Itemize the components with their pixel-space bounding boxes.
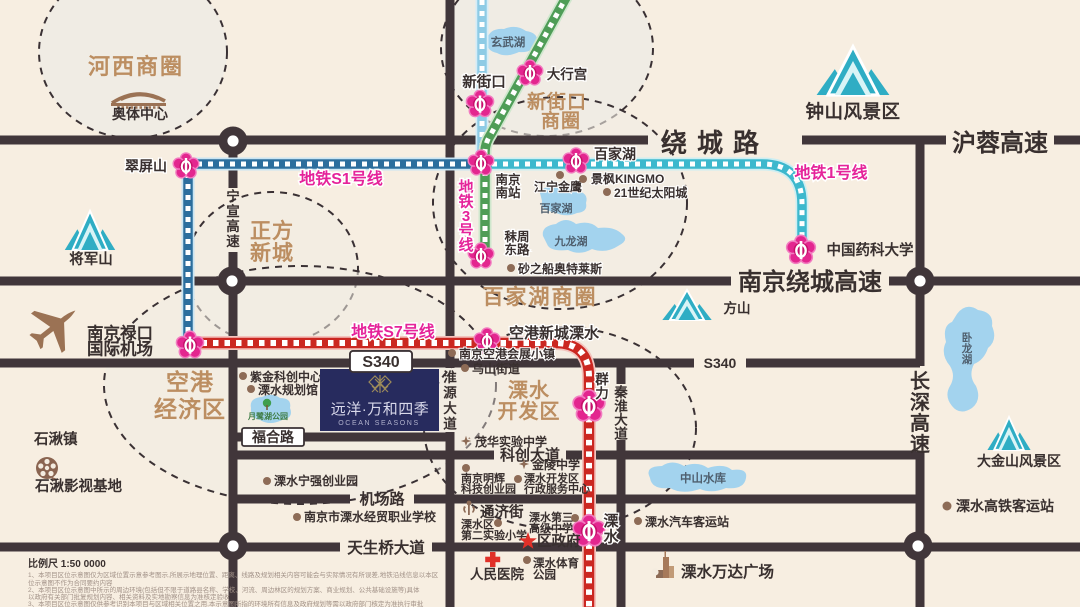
svg-text:福合路: 福合路 [251,429,295,445]
svg-text:宁宣高速: 宁宣高速 [226,188,240,249]
svg-text:砂之船奥特莱斯: 砂之船奥特莱斯 [517,261,602,276]
svg-text:钟山风景区: 钟山风景区 [805,101,900,122]
svg-text:河西商圈: 河西商圈 [88,54,184,79]
svg-text:绕城路: 绕城路 [661,128,769,158]
svg-text:南京禄口国际机场: 南京禄口国际机场 [87,323,153,359]
svg-text:玄武湖: 玄武湖 [491,35,526,49]
svg-text:新街口: 新街口 [462,73,506,91]
svg-text:月鹭湖公园: 月鹭湖公园 [247,411,288,421]
svg-text:溧水规划馆: 溧水规划馆 [258,382,318,397]
svg-text:溧水万达广场: 溧水万达广场 [681,562,774,581]
svg-text:大行宫: 大行宫 [547,66,588,82]
svg-text:奥体中心: 奥体中心 [112,106,168,122]
svg-text:地铁S1号线: 地铁S1号线 [299,169,383,188]
svg-text:中山水库: 中山水库 [680,471,726,485]
svg-text:百家湖: 百家湖 [540,201,573,215]
svg-text:景枫KINGMO: 景枫KINGMO [591,171,664,186]
svg-text:中国药科大学: 中国药科大学 [827,241,914,259]
svg-text:沪蓉高速: 沪蓉高速 [952,129,1048,157]
svg-text:S340: S340 [362,354,399,371]
svg-text:溧水汽车客运站: 溧水汽车客运站 [645,514,729,529]
svg-text:地铁1号线: 地铁1号线 [795,163,868,182]
svg-text:卧龙湖: 卧龙湖 [961,331,973,366]
svg-text:将军山: 将军山 [69,250,113,268]
svg-text:秦淮大道: 秦淮大道 [613,384,628,441]
svg-text:乌山街道: 乌山街道 [472,361,520,376]
svg-text:大金山风景区: 大金山风景区 [977,453,1061,469]
svg-text:远洋·万和四季: 远洋·万和四季 [331,401,430,418]
svg-text:地铁S7号线: 地铁S7号线 [351,322,435,341]
svg-text:秣周东路: 秣周东路 [504,229,530,257]
svg-text:人民医院: 人民医院 [470,566,524,582]
svg-text:比例尺 1:50 0000: 比例尺 1:50 0000 [28,557,106,570]
svg-text:位示意图不作为合同要约内容: 位示意图不作为合同要约内容 [28,578,113,587]
svg-text:南京空港会展小镇: 南京空港会展小镇 [459,346,555,361]
svg-text:溧水高铁客运站: 溧水高铁客运站 [956,498,1054,514]
svg-text:长深高速: 长深高速 [910,370,931,456]
svg-text:百家湖: 百家湖 [594,146,636,162]
svg-text:3、本项目区位示意图仅供参考识别本项目与区域相关位置之用,本: 3、本项目区位示意图仅供参考识别本项目与区域相关位置之用,本示意图所指的环境所有… [28,599,424,607]
svg-text:溧水: 溧水 [603,512,619,546]
svg-text:石湫影视基地: 石湫影视基地 [34,477,122,495]
svg-text:九龙湖: 九龙湖 [554,234,588,248]
svg-text:茂华实验中学: 茂华实验中学 [475,434,547,449]
svg-text:石湫镇: 石湫镇 [33,430,78,448]
svg-text:OCEAN SEASONS: OCEAN SEASONS [338,420,419,427]
svg-text:紫金科创中心: 紫金科创中心 [250,369,322,384]
svg-text:以政府有关部门批复规划内容、相关资料及实地勘察信息为准核定验: 以政府有关部门批复规划内容、相关资料及实地勘察信息为准核定验收 [28,592,230,601]
svg-text:金陵中学: 金陵中学 [531,457,580,472]
svg-text:1、本项目区位示意图仅为区域位置示意参考图示,所展示地理位置: 1、本项目区位示意图仅为区域位置示意参考图示,所展示地理位置、距离、线路及规划相… [28,570,439,579]
svg-text:方山: 方山 [724,300,751,316]
svg-text:南京市溧水经贸职业学校: 南京市溧水经贸职业学校 [304,509,437,524]
svg-text:S340: S340 [704,355,737,371]
svg-text:正方新城: 正方新城 [250,219,294,265]
svg-text:淮源大道: 淮源大道 [443,369,457,432]
svg-text:天生桥大道: 天生桥大道 [347,538,425,557]
svg-text:南京绕城高速: 南京绕城高速 [738,268,882,296]
svg-text:群力: 群力 [594,371,609,401]
svg-text:空港新城溧水: 空港新城溧水 [509,324,600,342]
svg-text:21世纪太阳城: 21世纪太阳城 [614,185,687,200]
svg-text:2、本项目区位示意图中所示的周边环境(包括但不限于道路县名称: 2、本项目区位示意图中所示的周边环境(包括但不限于道路县名称、学校、河流、周边林… [28,585,420,594]
svg-text:百家湖商圈: 百家湖商圈 [483,285,598,309]
svg-text:溧水宁强创业园: 溧水宁强创业园 [274,473,358,488]
svg-text:溧水第三高级中学: 溧水第三高级中学 [529,510,573,535]
svg-text:区政府: 区政府 [537,532,581,550]
svg-text:江宁金鹰: 江宁金鹰 [534,179,582,194]
svg-text:翠屏山: 翠屏山 [125,158,167,174]
svg-text:机场路: 机场路 [359,490,405,508]
svg-text:南京南站: 南京南站 [495,172,521,200]
